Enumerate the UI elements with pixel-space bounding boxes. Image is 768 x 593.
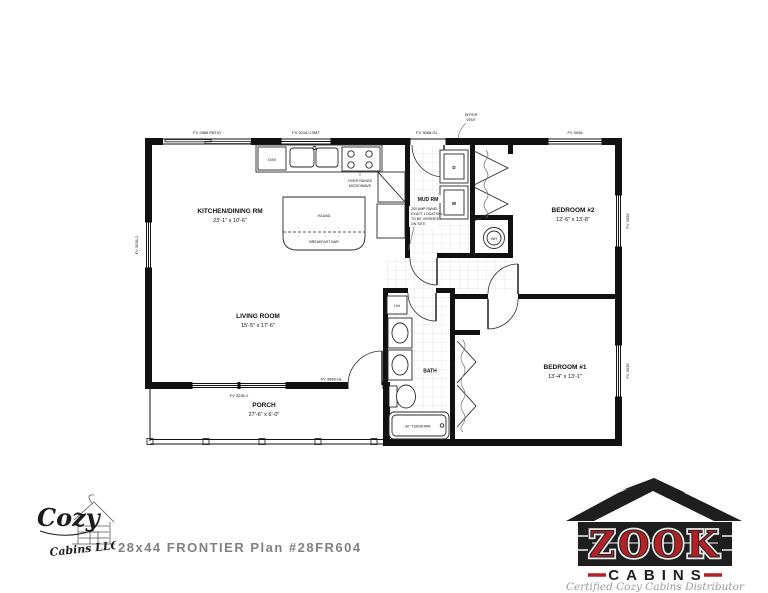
patio-door-label: FV 2868 PATIO [193,130,221,135]
refrigerator [377,204,405,238]
bedroom2-dims: 12'-6" x 13'-8" [556,217,590,223]
living-window-label: FV 3036-2 [230,393,249,398]
kitchen-window-label: FV 3016 CSMT [292,130,320,135]
svg-text:ON SITE: ON SITE [411,222,426,226]
kitchen-counter: D/W [256,145,405,238]
patio-door: FV 2868 PATIO [163,130,251,146]
porch-label: PORCH [252,402,276,409]
zook-wordmark: ZOOK [589,524,721,566]
svg-text:MICROWAVE: MICROWAVE [349,184,372,188]
linen-cabinet: LIN [387,296,407,314]
roof-shape [566,478,742,521]
water-heater-label: WH [491,237,497,241]
bedroom2-window-label: FV 3036 [567,130,583,135]
svg-text:VENT: VENT [466,118,476,122]
range [342,147,380,171]
corner-cabinet [378,172,405,202]
island-label: ISLAND [318,214,331,218]
water-heater: WH [484,228,505,249]
right-window-bottom-label: FV 3036 [625,363,630,379]
svg-text:LIN: LIN [394,304,400,308]
rear-door-label: FV 3068-GL [416,130,439,135]
tub-label: 60" TUB/SHWR [405,425,431,429]
kitchen-sink [290,146,338,167]
living-dims: 15'-5" x 17'-6" [241,323,275,329]
kitchen-island: ISLAND BREAKFAST BAR [283,197,365,250]
right-window-top: FV 3036 [614,195,630,247]
cozy-script-bottom: Cabins LLC [49,539,116,559]
microwave-note: OVER RANGE MICROWAVE [348,172,373,188]
kitchen-dims: 23'-1" x 10'-6" [213,218,247,224]
svg-text:DRYER: DRYER [465,113,478,117]
closet-rod [484,150,488,218]
zook-cabins-logo: ZOOK ZOOK CABINS Certified Cozy Cabins D… [562,476,748,592]
dryer-vent-note: DRYER VENT [458,113,478,138]
left-window-label: FV 3036-2 [134,235,139,254]
right-window-top-label: FV 3036 [625,213,630,229]
svg-text:TO BE VERIFIED: TO BE VERIFIED [411,217,440,221]
mud-room-label: MUD RM [418,197,439,203]
svg-text:EXACT LOCATION: EXACT LOCATION [411,212,442,216]
svg-text:200 AMP PANEL: 200 AMP PANEL [411,207,438,211]
bedroom1-dims: 13'-4" x 13'-1" [548,374,582,380]
living-label: LIVING ROOM [236,313,280,320]
kitchen-window: FV 3016 CSMT [281,130,331,146]
bathtub: 60" TUB/SHWR [389,412,449,439]
plan-caption: 28x44 FRONTIER Plan #28FR604 [118,540,362,555]
kitchen-label: KITCHEN/DINING RM [197,208,262,215]
cozy-cabins-logo: Cozy Cabins LLC [36,494,116,570]
breakfast-bar-label: BREAKFAST BAR [309,240,339,244]
right-window-bottom: FV 3036 [614,345,630,397]
bedroom2-label: BEDROOM #2 [552,207,595,214]
zook-tagline: Certified Cozy Cabins Distributor [566,581,745,592]
bedroom2-window: FV 3036 [548,130,602,146]
porch-dims: 27'-6" x 6'-0" [249,412,280,418]
front-door-label: FV 3068-GL [321,377,344,382]
toilet [389,385,416,408]
cozy-script-top: Cozy [37,503,102,532]
living-window: FV 3036-2 [192,381,286,398]
bath-label: BATH [423,369,437,375]
bedroom1-closet [457,340,476,432]
left-window: FV 3036-2 [134,222,153,268]
bedroom1-label: BEDROOM #1 [544,364,587,371]
bedroom2-closet [474,150,508,221]
svg-text:OVER RANGE: OVER RANGE [348,179,373,183]
dishwasher-label: D/W [268,157,276,162]
